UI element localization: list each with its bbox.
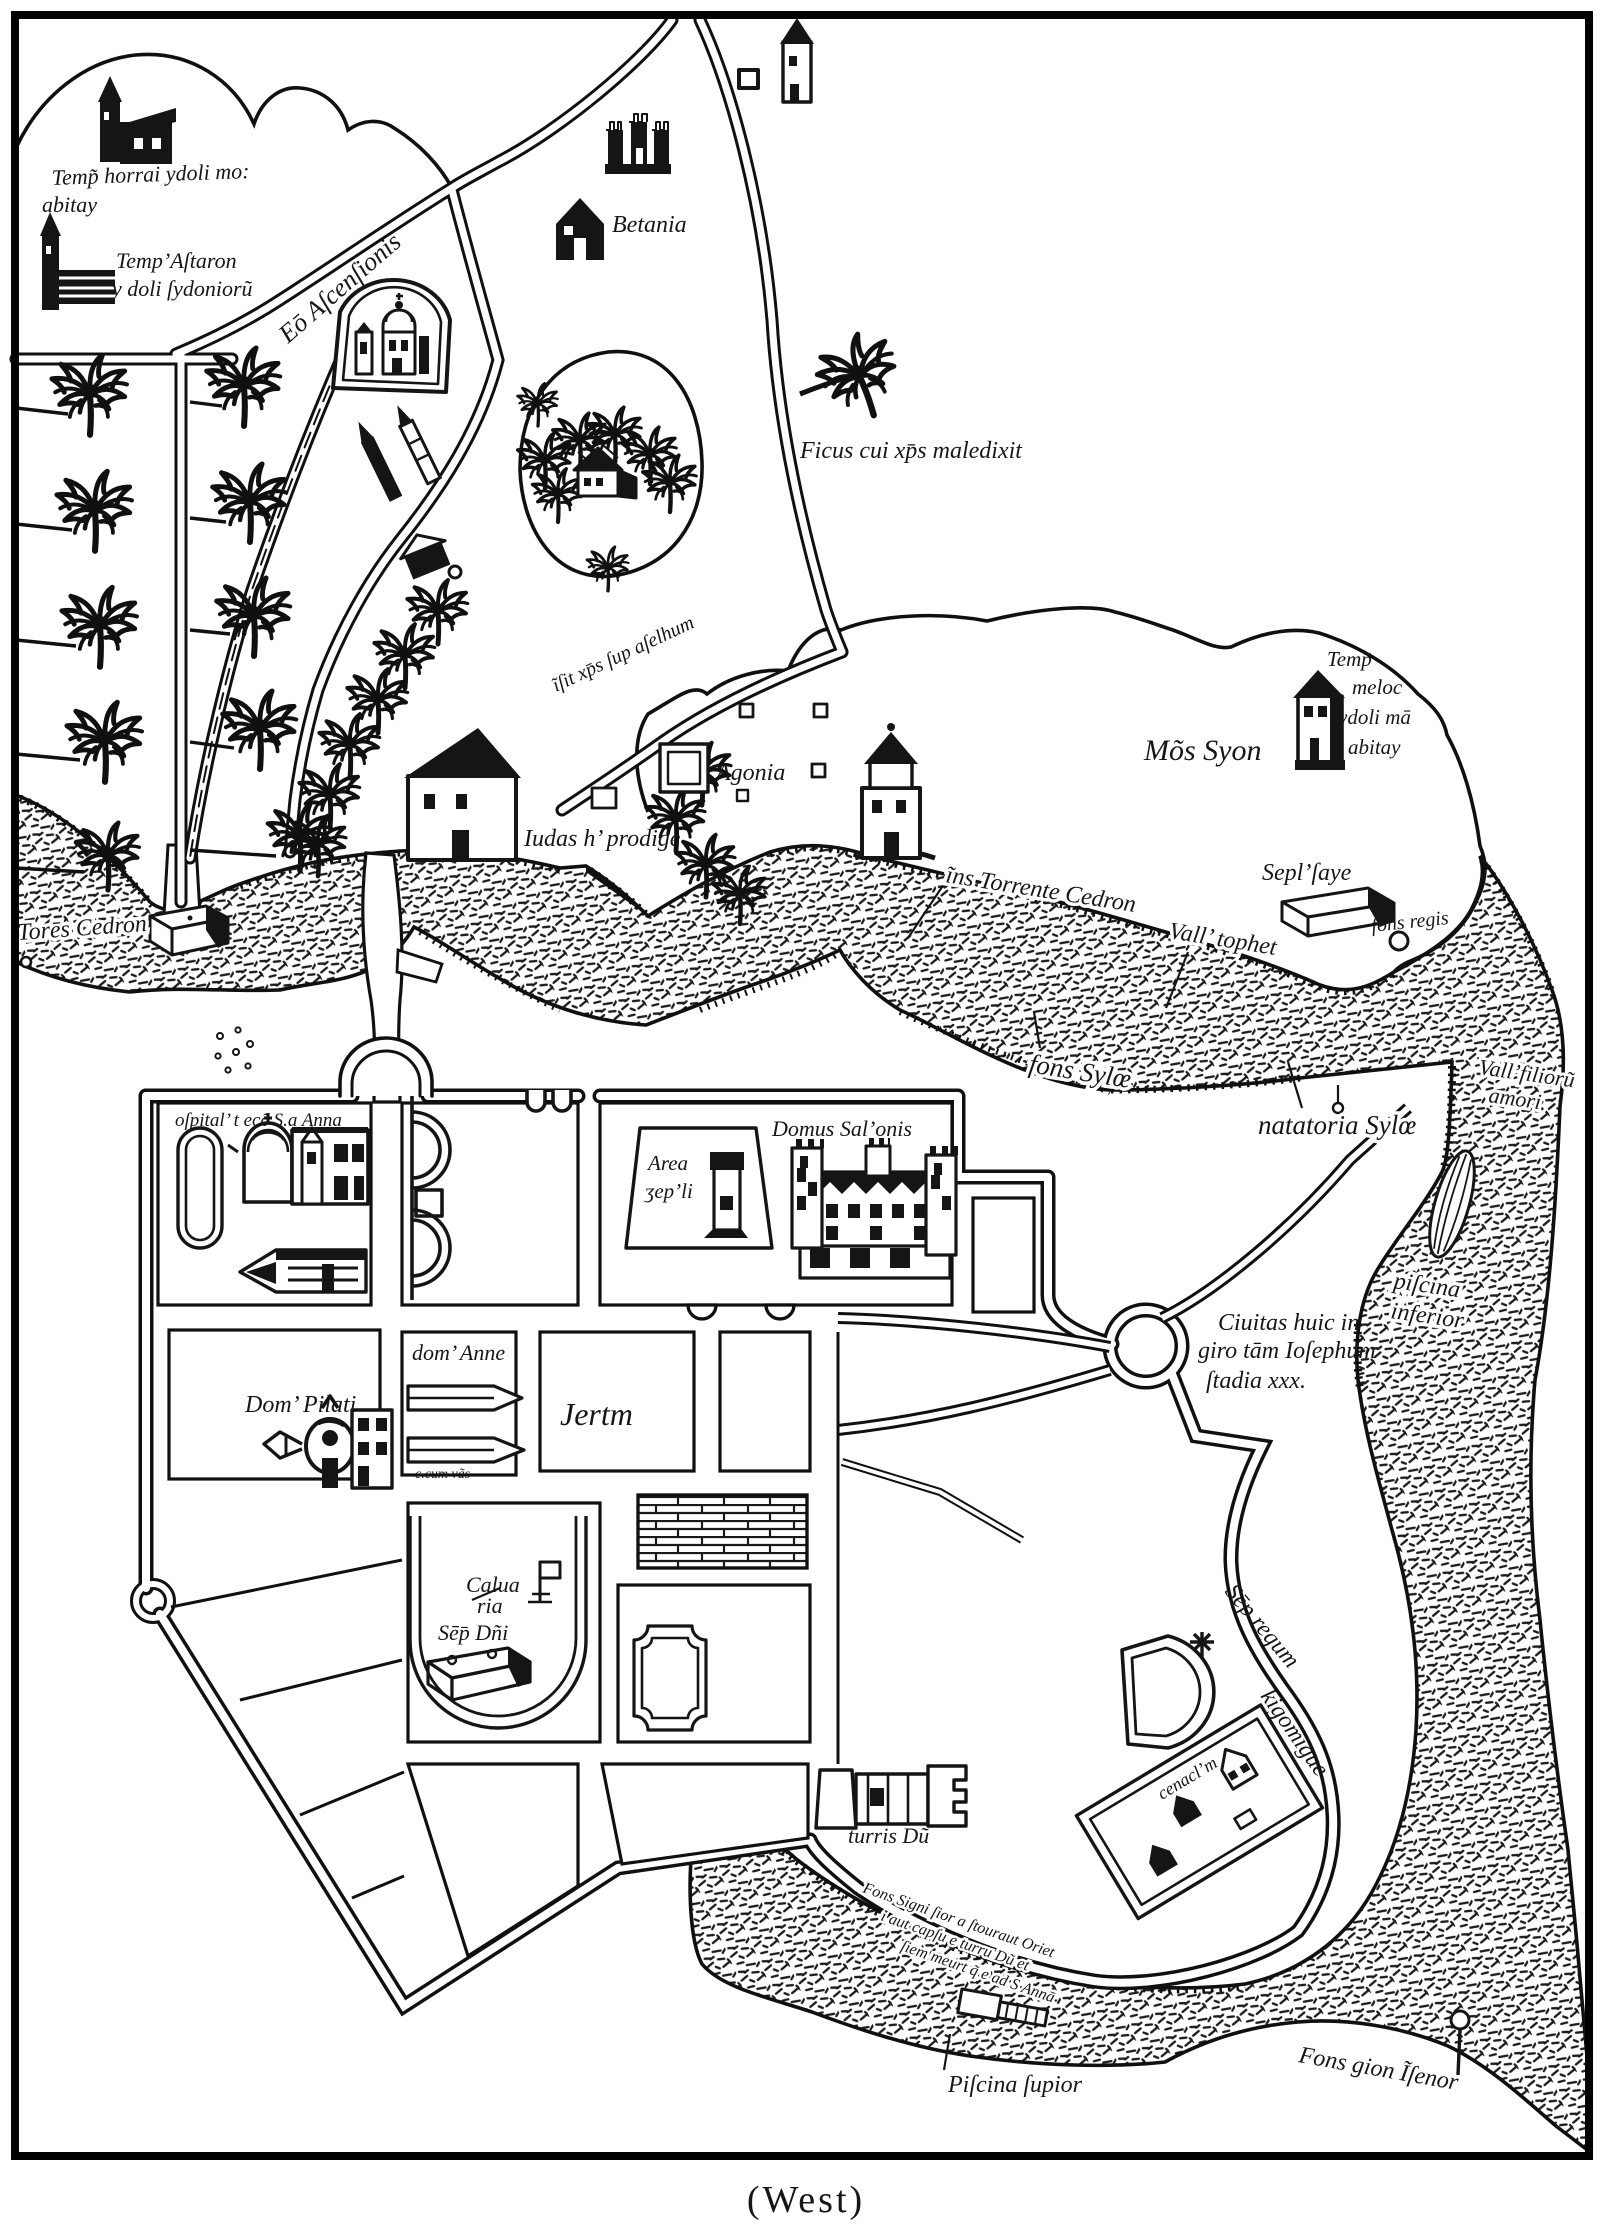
svg-text:oſpital’ t ecc̃ S.a Anna: oſpital’ t ecc̃ S.a Anna <box>175 1110 342 1131</box>
svg-text:giro tām Ioſephum: giro tām Ioſephum <box>1198 1338 1376 1364</box>
svg-text:ydoli mā: ydoli mā <box>1336 705 1411 729</box>
svg-text:(West): (West) <box>747 2179 865 2221</box>
svg-text:meloc: meloc <box>1352 675 1403 699</box>
svg-text:Iudas h’ prodige: Iudas h’ prodige <box>523 826 681 852</box>
svg-text:Ficus cui xp̄s maledixit: Ficus cui xp̄s maledixit <box>799 438 1023 464</box>
svg-text:Mõs Syon: Mõs Syon <box>1143 734 1261 767</box>
svg-text:Sepl’ſaye: Sepl’ſaye <box>1262 860 1352 886</box>
svg-text:ſtadia xxx.: ſtadia xxx. <box>1206 1368 1306 1394</box>
svg-text:Betania: Betania <box>612 212 687 238</box>
svg-text:Area: Area <box>646 1151 688 1175</box>
svg-text:Temp’Aſtaron: Temp’Aſtaron <box>116 248 237 273</box>
svg-text:Temp̃: Temp̃ <box>1327 647 1372 671</box>
svg-text:Dom’ Pilati: Dom’ Pilati <box>244 1392 356 1418</box>
svg-text:c.cum vãs: c.cum vãs <box>415 1467 471 1482</box>
svg-text:Jertm: Jertm <box>560 1396 633 1432</box>
svg-text:Sēp̄ Dñi: Sēp̄ Dñi <box>438 1620 508 1645</box>
svg-text:Ciuitas huic in: Ciuitas huic in <box>1218 1310 1359 1336</box>
svg-text:turris Dũ: turris Dũ <box>848 1823 929 1848</box>
svg-text:y doli ſydoniorũ: y doli ſydoniorũ <box>110 276 253 301</box>
svg-text:ria: ria <box>477 1593 503 1618</box>
svg-text:natatoria Sylœ: natatoria Sylœ <box>1258 1110 1416 1140</box>
svg-text:abitay: abitay <box>42 192 97 217</box>
svg-text:Domus Sal’onis: Domus Sal’onis <box>771 1116 912 1141</box>
svg-text:abitay: abitay <box>1348 735 1401 759</box>
svg-text:dom’ Anne: dom’ Anne <box>412 1340 505 1365</box>
svg-text:Agonia: Agonia <box>714 760 785 786</box>
svg-text:ʒep’li: ʒep’li <box>643 1179 693 1203</box>
svg-text:Piſcina ſupior: Piſcina ſupior <box>947 2072 1083 2098</box>
